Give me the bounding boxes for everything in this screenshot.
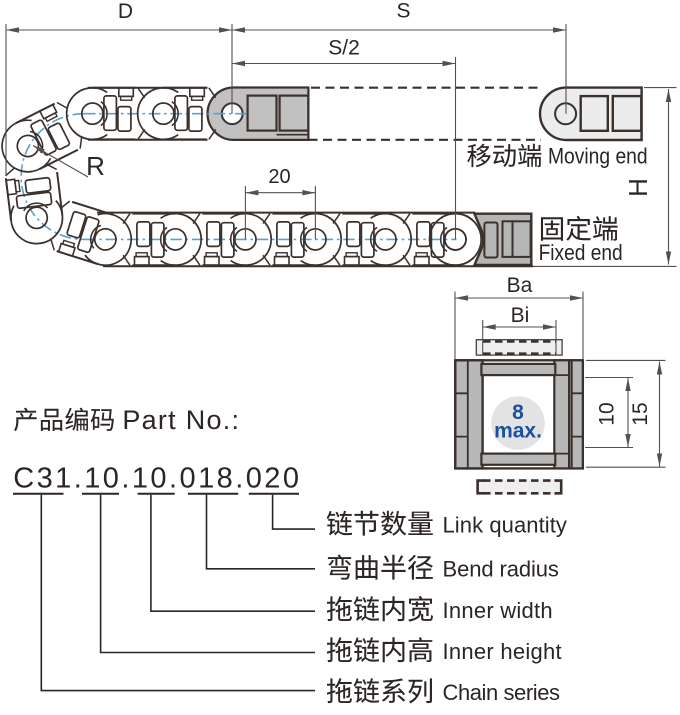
svg-text:Ba: Ba xyxy=(507,274,533,297)
svg-text:S/2: S/2 xyxy=(328,37,360,60)
svg-text:20: 20 xyxy=(268,166,290,188)
svg-text:Moving end: Moving end xyxy=(548,144,648,169)
svg-text:Bend radius: Bend radius xyxy=(443,557,559,582)
svg-text:max.: max. xyxy=(494,420,542,443)
svg-text:C31.10.10.018.020: C31.10.10.018.020 xyxy=(13,463,299,495)
svg-text:R: R xyxy=(86,151,105,181)
svg-text:15: 15 xyxy=(629,402,652,425)
svg-text:S: S xyxy=(396,0,410,23)
svg-text:Bi: Bi xyxy=(511,304,530,327)
svg-text:Inner height: Inner height xyxy=(443,639,562,664)
svg-text:Fixed end: Fixed end xyxy=(539,240,623,265)
svg-text:10: 10 xyxy=(596,402,619,425)
svg-text:Link quantity: Link quantity xyxy=(443,513,567,538)
svg-text:D: D xyxy=(118,0,133,23)
svg-text:H: H xyxy=(623,178,653,197)
svg-text:Inner width: Inner width xyxy=(443,598,553,623)
svg-text:Chain series: Chain series xyxy=(443,680,561,705)
